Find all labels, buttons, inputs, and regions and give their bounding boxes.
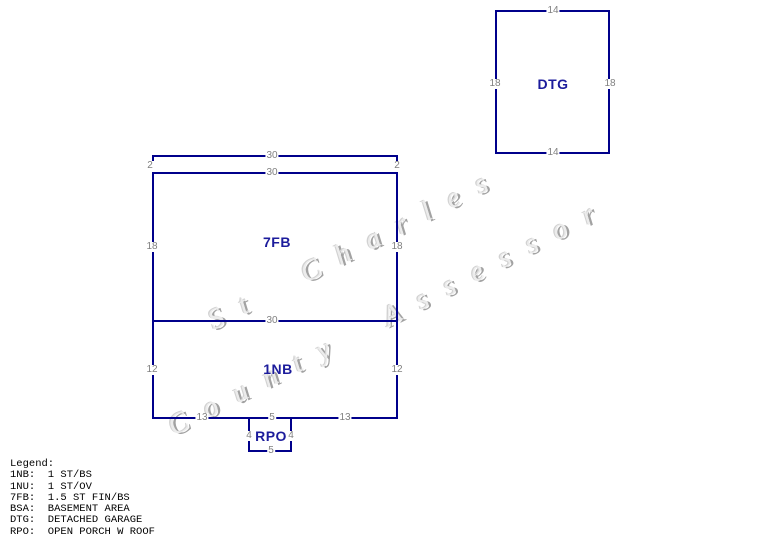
dim-dtg-top: 14	[546, 6, 559, 16]
dim-nb-left-height: 12	[145, 365, 158, 375]
legend: Legend: 1NB: 1 ST/BS 1NU: 1 ST/OV 7FB: 1…	[10, 459, 155, 538]
watermark-line-2: County Assessor	[163, 190, 618, 444]
legend-item: RPO: OPEN PORCH W ROOF	[10, 527, 155, 538]
dim-dtg-right: 18	[603, 79, 616, 89]
assessor-sketch-page: St Charles County Assessor 30 2 2 30 18 …	[0, 0, 762, 557]
dim-fb-right-height: 18	[390, 242, 403, 252]
dim-fb-left-height: 18	[145, 242, 158, 252]
legend-item: 1NB: 1 ST/BS	[10, 470, 155, 481]
main-right-wall-line	[396, 172, 398, 419]
dim-main-overhang-bottom-width: 30	[265, 168, 278, 178]
main-left-wall-line	[152, 172, 154, 419]
dim-dtg-bottom: 14	[546, 148, 559, 158]
dim-nb-bottom-right: 13	[338, 413, 351, 423]
dim-main-overhang-left: 2	[146, 161, 154, 171]
dim-fb-bottom-width: 30	[265, 316, 278, 326]
dtg-section-label: DTG	[537, 76, 568, 92]
watermark-line-1: St Charles	[203, 159, 511, 338]
dim-dtg-left: 18	[488, 79, 501, 89]
dim-nb-right-height: 12	[390, 365, 403, 375]
fb-section-label: 7FB	[263, 234, 291, 250]
dim-rpo-right: 4	[287, 431, 295, 441]
dim-nb-bottom-left: 13	[195, 413, 208, 423]
dim-main-overhang-right: 2	[393, 161, 401, 171]
dim-rpo-left: 4	[245, 431, 253, 441]
nb-section-label: 1NB	[263, 361, 293, 377]
dim-nb-bottom-center: 5	[268, 413, 276, 423]
dim-main-overhang-top-width: 30	[265, 151, 278, 161]
dim-rpo-bottom: 5	[267, 446, 275, 456]
rpo-section-label: RPO	[255, 428, 287, 444]
